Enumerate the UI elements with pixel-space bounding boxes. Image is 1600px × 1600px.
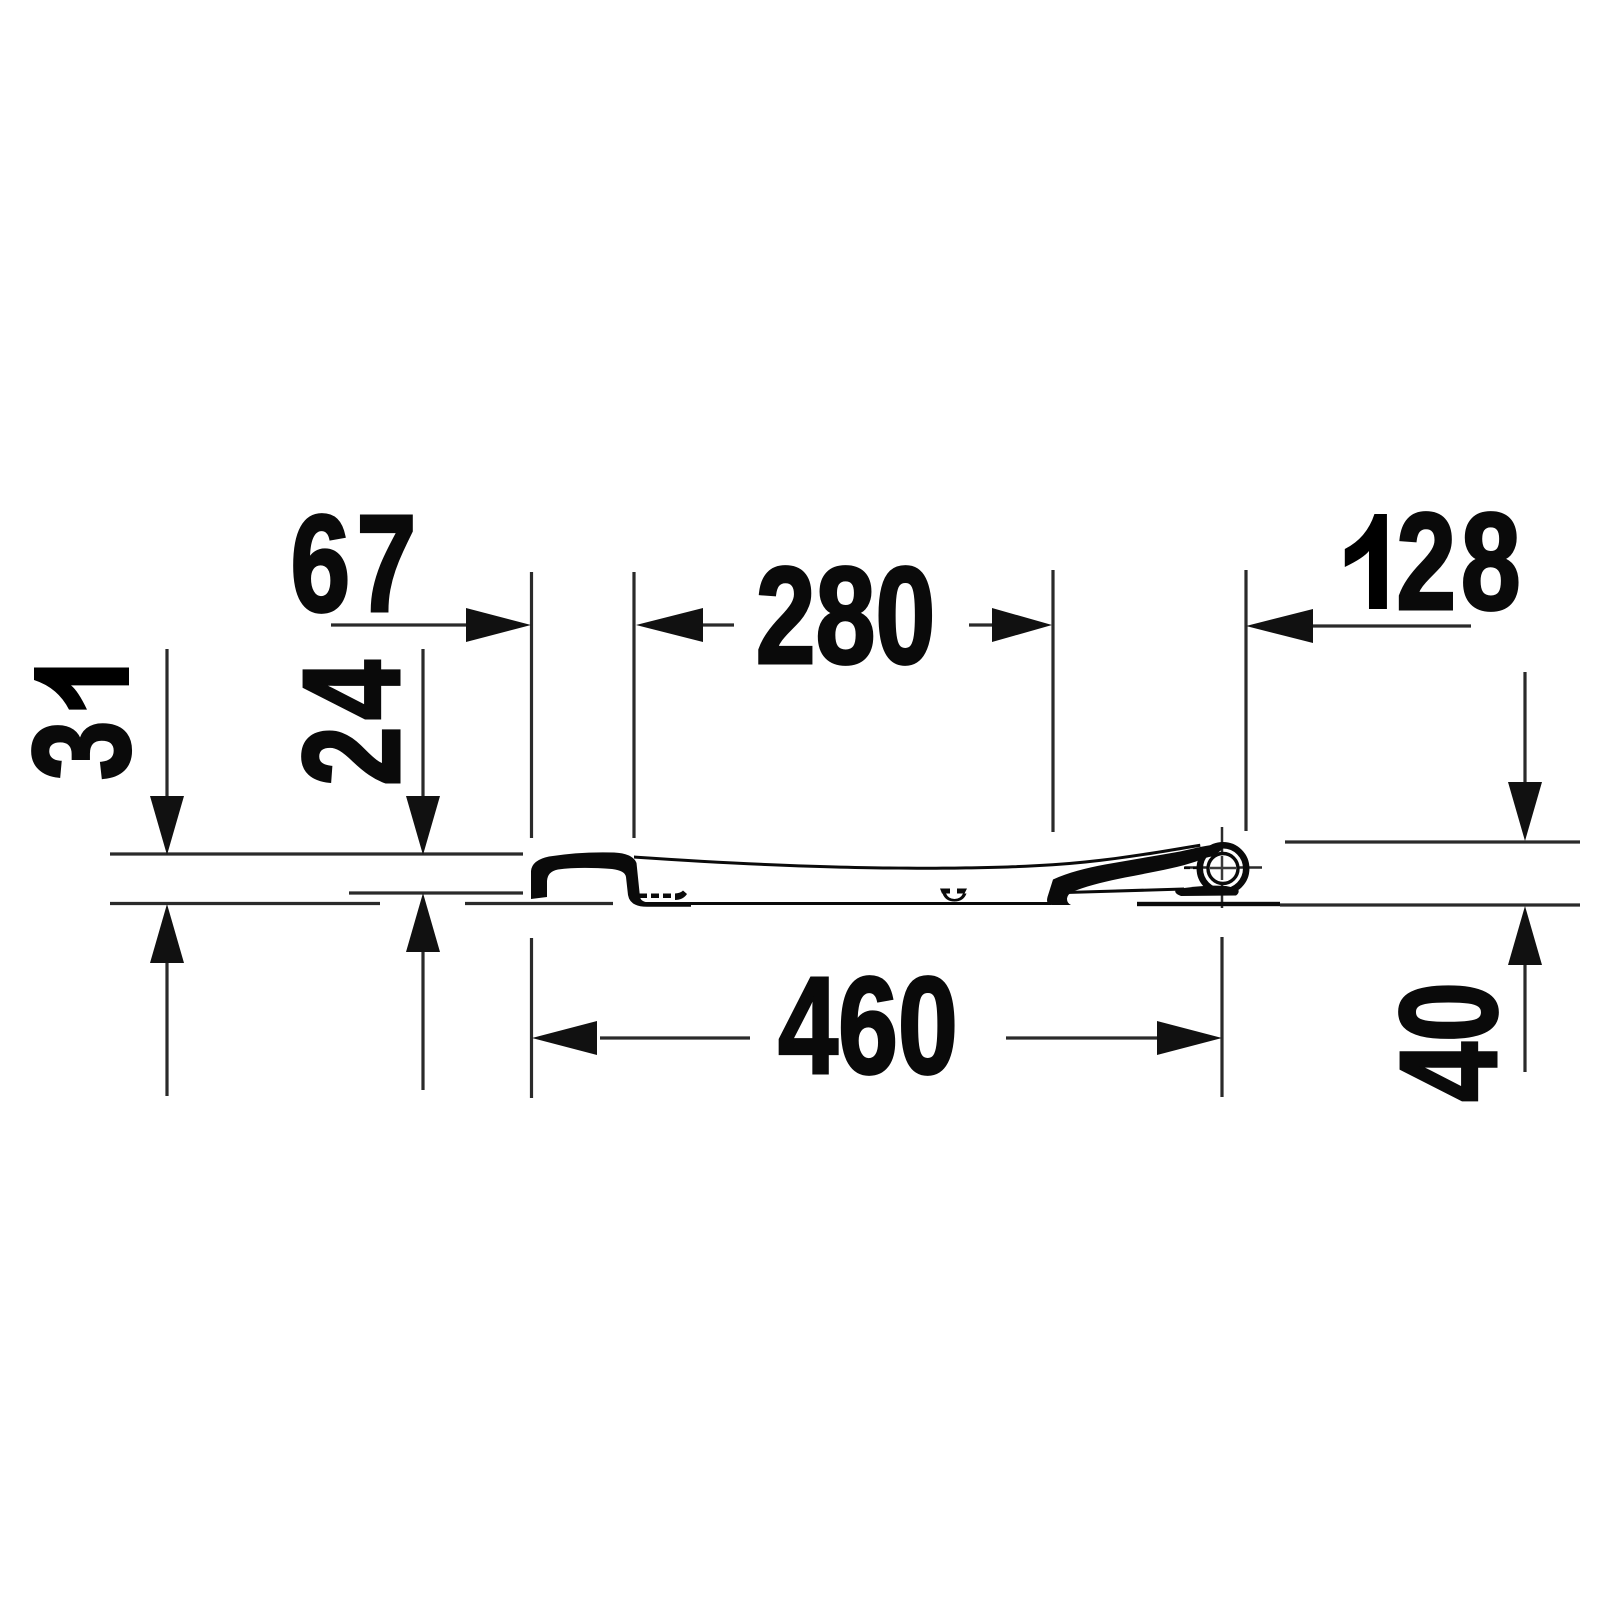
svg-text:24: 24 bbox=[275, 654, 429, 786]
svg-text:28: 28 bbox=[1396, 485, 1525, 639]
svg-text:460: 460 bbox=[778, 949, 958, 1103]
svg-text:280: 280 bbox=[756, 539, 936, 693]
svg-text:67: 67 bbox=[290, 487, 422, 641]
svg-text:3: 3 bbox=[5, 721, 159, 781]
svg-text:40: 40 bbox=[1372, 982, 1526, 1102]
